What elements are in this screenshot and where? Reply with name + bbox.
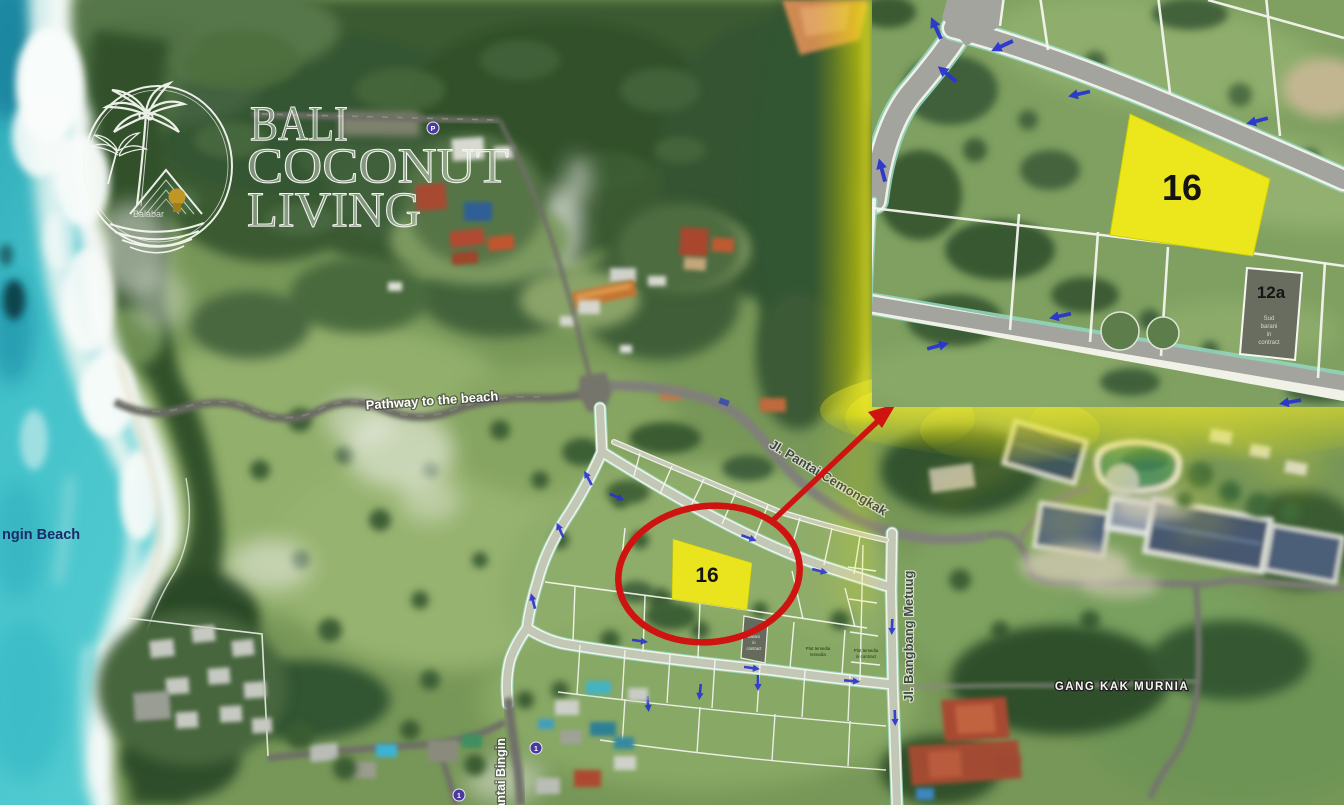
svg-text:1: 1 [457,793,461,800]
svg-text:Pantai Bingin: Pantai Bingin [494,738,508,805]
svg-text:barani: barani [1261,324,1278,330]
svg-text:Plot tersedia: Plot tersedia [806,646,831,651]
svg-text:16: 16 [695,564,718,587]
svg-text:in contract: in contract [856,654,877,659]
svg-text:in: in [1267,332,1272,338]
svg-text:1: 1 [534,746,538,753]
svg-text:GANG KAK MURNIA: GANG KAK MURNIA [1055,681,1189,693]
svg-text:12a: 12a [1257,283,1286,302]
svg-text:contract: contract [747,646,763,651]
svg-text:16: 16 [1162,167,1202,208]
svg-text:contract: contract [1258,340,1280,346]
svg-text:tersedia: tersedia [810,652,826,657]
svg-text:Plot tersedia: Plot tersedia [854,648,879,653]
svg-text:P: P [431,126,436,133]
svg-text:LIVING: LIVING [247,181,421,237]
svg-text:Balabar: Balabar [133,209,164,219]
svg-text:ngin Beach: ngin Beach [2,527,80,543]
svg-text:Jl. Bangbang Metuug: Jl. Bangbang Metuug [901,571,916,703]
svg-text:Sud: Sud [1264,316,1275,322]
